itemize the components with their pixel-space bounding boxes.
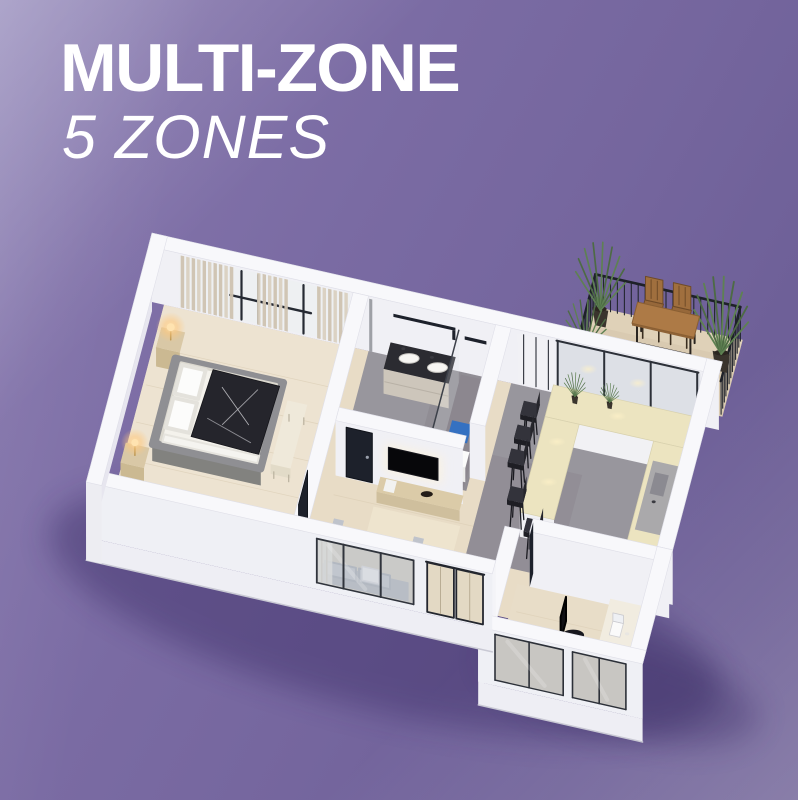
- headline-block: MULTI-ZONE 5 ZONES: [60, 34, 459, 168]
- entry-door: [346, 427, 372, 482]
- headline: MULTI-ZONE: [60, 34, 459, 103]
- subheadline: 5 ZONES: [62, 107, 459, 168]
- promo-graphic: MULTI-ZONE 5 ZONES: [0, 0, 798, 800]
- pillow: [175, 365, 206, 399]
- pillow: [166, 398, 197, 433]
